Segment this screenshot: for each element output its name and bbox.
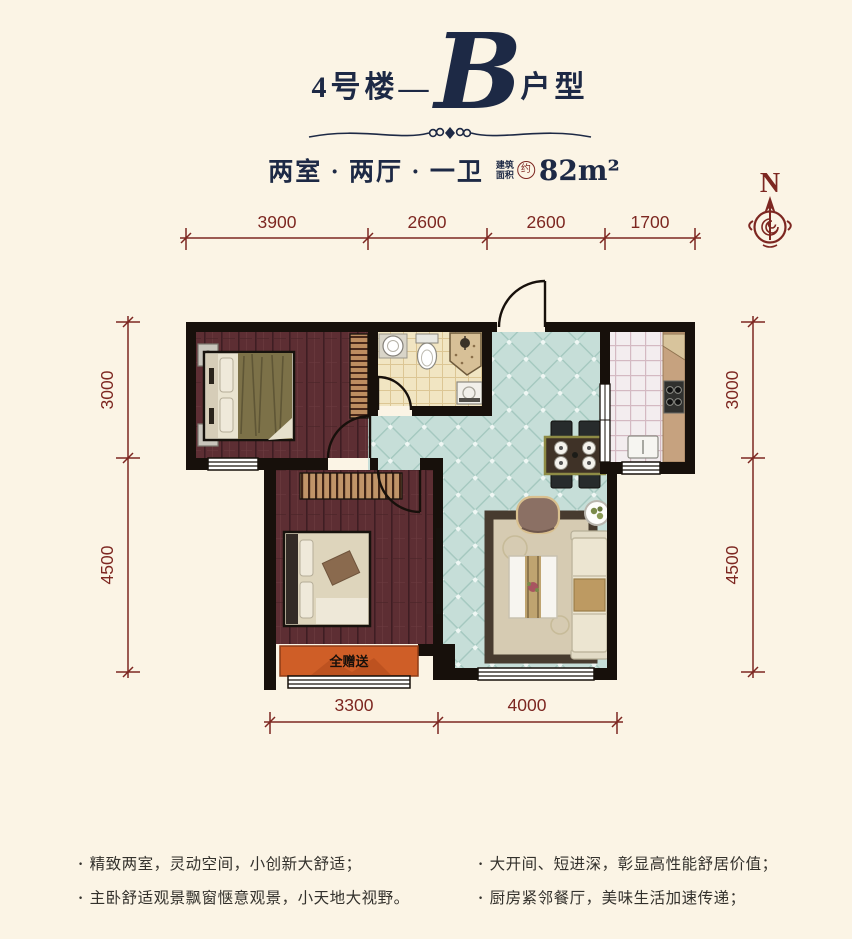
dim-bottom-2: 4000	[508, 695, 547, 715]
living-window	[478, 668, 594, 680]
features-right-column: ·大开间、短进深，彰显高性能舒居价值； ·厨房紧邻餐厅，美味生活加速传递；	[478, 848, 852, 916]
title-dash: —	[399, 72, 433, 116]
bullet-dot: ·	[78, 890, 84, 907]
kitchen-window	[622, 462, 660, 474]
feature-text: 精致两室，灵动空间，小创新大舒适；	[90, 856, 362, 873]
area-value: 82m²	[539, 154, 620, 187]
title-suffix: 户型	[520, 62, 588, 116]
title-letter: B	[435, 28, 523, 116]
wardrobe1	[350, 334, 368, 418]
feature-item: ·厨房紧邻餐厅，美味生活加速传递；	[478, 882, 852, 916]
dim-top-1: 3900	[258, 212, 297, 232]
armchair	[517, 497, 559, 533]
bed2	[284, 532, 370, 626]
flourish-divider	[305, 122, 595, 144]
sofa	[571, 531, 609, 659]
area-caption-line1: 建筑	[496, 160, 514, 170]
feature-item: ·大开间、短进深，彰显高性能舒居价值；	[478, 848, 852, 882]
plant	[585, 501, 609, 525]
bullet-dot: ·	[78, 856, 84, 873]
bullet-dot: ·	[478, 890, 484, 907]
feature-text: 大开间、短进深，彰显高性能舒居价值；	[490, 856, 778, 873]
subtitle-block: 两室 · 两厅 · 一卫 建筑 面积 约 82m²	[268, 152, 620, 188]
room-count-label: 两室 · 两厅 · 一卫	[268, 152, 484, 188]
coffee-table	[509, 556, 557, 618]
title-block: 4号楼 — B 户型	[312, 28, 589, 116]
feature-text: 厨房紧邻餐厅，美味生活加速传递；	[490, 890, 746, 907]
living-room-furniture	[489, 497, 609, 659]
gift-bay-window: 全赠送	[280, 646, 418, 688]
dim-right-2: 4500	[722, 545, 742, 584]
dim-left-1: 3000	[97, 370, 117, 409]
area-caption-line2: 面积	[496, 170, 514, 180]
dim-top-4: 1700	[631, 212, 670, 232]
bullet-dot: ·	[478, 856, 484, 873]
tv	[436, 528, 443, 614]
features-left-column: ·精致两室，灵动空间，小创新大舒适； ·主卧舒适观景飘窗惬意观景，小天地大视野。	[78, 848, 478, 916]
feature-text: 主卧舒适观景飘窗惬意观景，小天地大视野。	[90, 890, 410, 907]
stove	[664, 381, 684, 413]
approx-badge: 约	[517, 161, 535, 179]
dim-bottom-1: 3300	[335, 695, 374, 715]
dim-left-2: 4500	[97, 545, 117, 584]
dim-right-1: 3000	[722, 370, 742, 409]
bed1	[204, 352, 294, 440]
compass-north-label: N	[760, 168, 780, 199]
feature-item: ·精致两室，灵动空间，小创新大舒适；	[78, 848, 478, 882]
title-prefix: 4号楼	[312, 62, 399, 116]
kitchen-sliding-door	[600, 384, 610, 462]
gift-label: 全赠送	[328, 654, 369, 669]
floorplan-page: 全赠送	[0, 0, 852, 939]
area-caption: 建筑 面积	[496, 160, 514, 180]
toilet	[418, 343, 437, 369]
bottom-dim-ticks	[265, 712, 622, 734]
feature-item: ·主卧舒适观景飘窗惬意观景，小天地大视野。	[78, 882, 478, 916]
bedroom1-window	[208, 458, 258, 470]
entry-door	[499, 281, 545, 327]
compass: N	[749, 168, 791, 247]
dim-top-2: 2600	[408, 212, 447, 232]
dim-top-3: 2600	[527, 212, 566, 232]
washbasin	[383, 336, 403, 356]
